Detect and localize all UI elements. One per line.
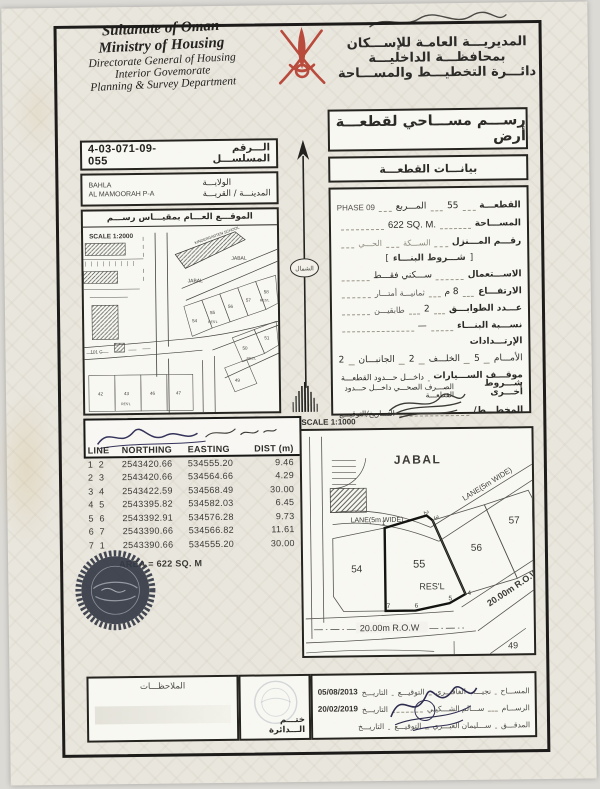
cell: 9.46: [248, 456, 294, 470]
district-label: الحـــي: [358, 240, 382, 248]
wilaya-label: الولايـــة: [202, 177, 270, 188]
cell: 534564.66: [188, 470, 248, 484]
overview-plot-54: 54: [192, 318, 198, 323]
cell: 534555.20: [189, 537, 249, 551]
use-label: الاســـتعمال: [468, 270, 522, 280]
cell: 2543395.82: [122, 497, 188, 511]
overview-scale-label: SCALE 1:2000: [89, 233, 134, 241]
planner-signature: [379, 384, 469, 419]
cell: 2543422.59: [122, 484, 188, 498]
official-round-stamp: [71, 546, 160, 635]
back-label: الخلـــف: [429, 355, 460, 364]
cell: 2543420.66: [122, 470, 188, 484]
cell: 5 6: [88, 512, 122, 526]
checker-role: المدقـــق: [501, 721, 530, 729]
detail-plot-49: 49: [508, 640, 518, 650]
cell: 3 4: [88, 485, 122, 499]
notes-smudge: [95, 705, 231, 725]
jabal-label-2: JABAL: [188, 278, 204, 284]
detail-map-box: JABAL LANE(5m WIDE) LANE(5m WIDE) 54 55 …: [299, 426, 536, 658]
overview-resl-43: RES'L: [121, 402, 131, 406]
ratio-value: —: [418, 322, 427, 331]
serial-number-box: 4-03-071-09-055 الـــرقم المسلســـل: [80, 138, 278, 170]
cell: 534555.20: [188, 456, 248, 470]
jabal-label-1: JABAL: [231, 256, 247, 262]
overview-plot-42: 42: [98, 391, 104, 396]
drawing-title-box: رســـم مســـاحي لقطعـــة أرض: [328, 107, 528, 151]
town-value: AL MAMOORAH P-A: [89, 190, 155, 198]
date-2: 20/02/2019: [318, 705, 358, 713]
detail-plot-57: 57: [509, 515, 521, 526]
north-arrow-strip: الشمال: [284, 136, 325, 418]
overview-plot-51: 51: [264, 335, 270, 340]
department-stamp-label: ختـــم الـــدائرة: [241, 715, 305, 736]
date-1: 05/08/2013: [318, 688, 358, 696]
detail-lane-2: LANE(5m WIDE): [351, 517, 404, 525]
draftsman-role: الرســـام: [501, 704, 529, 712]
overview-map-drawing: SCALE 1:2000 101 C KINDERGARTEN SCHOOL: [83, 225, 279, 413]
other-conditions-label: شـــروط أخـــرى: [462, 379, 523, 398]
overview-plot-56: 56: [228, 304, 234, 309]
conditions-header-close: ]: [385, 255, 389, 264]
setbacks-label: الإرتـــدادات: [470, 337, 523, 347]
cell: 2 3: [88, 471, 122, 485]
overview-resl-1: RES'L: [208, 320, 218, 324]
cell: 30.00: [248, 483, 294, 497]
overview-plot-55: 55: [210, 310, 216, 315]
overview-plot-50: 50: [242, 346, 248, 351]
front-label: الأمـــام: [494, 354, 523, 363]
detail-jabal-label: JABAL: [394, 452, 442, 467]
plot-data-header-box: بيانـــات القطعـــة: [328, 154, 528, 182]
height-value: 8 م: [444, 288, 458, 297]
detail-map-scale: SCALE 1:1000: [301, 417, 355, 427]
detail-map-drawing: JABAL LANE(5m WIDE) LANE(5m WIDE) 54 55 …: [301, 428, 534, 656]
cell: 534568.49: [188, 483, 248, 497]
overview-resl-3: RES'L: [247, 357, 257, 361]
paper-sheet: Sultanate of Oman Ministry of Housing Di…: [1, 1, 596, 785]
vertex-7: 7: [387, 603, 391, 610]
vertex-6: 6: [415, 603, 419, 610]
cell: 6.45: [248, 496, 294, 510]
plot-number: 55: [447, 202, 459, 211]
front-value: 5: [474, 355, 480, 364]
cell: 4.29: [248, 469, 294, 483]
house-number-label: رقـــم المـــنزل: [452, 237, 521, 247]
plot-data-header: بيانـــات القطعـــة: [379, 161, 477, 175]
detail-plot-55: 55: [413, 558, 425, 570]
use-value: ســـكني فقـــط: [373, 271, 432, 281]
plot-label: القطعـــة: [479, 201, 521, 211]
notes-label: الملاحظـــات: [95, 681, 231, 693]
vertex-1: 1: [382, 520, 386, 527]
area-label: المســـاحة: [475, 219, 521, 229]
drawing-title: رســـم مســـاحي لقطعـــة أرض: [330, 112, 526, 146]
parking-value: داخـــل حـــدود القطعـــة: [341, 373, 424, 382]
cell: 6 7: [89, 525, 123, 539]
cell: 11.61: [249, 523, 295, 537]
cell: 4 5: [88, 498, 122, 512]
north-label: الشمال: [295, 265, 314, 272]
col-dist: DIST (m): [248, 442, 294, 456]
cell: 2543390.66: [123, 524, 189, 538]
overview-plot-47: 47: [176, 390, 182, 395]
signatures-box: المســـاح نجيـــب الغافـــري التوقيـــع …: [310, 671, 537, 740]
lane-label: الســـكة: [403, 239, 431, 247]
square-value: PHASE 09: [337, 204, 375, 212]
overview-map-box: الموقـــع العـــام بمقيـــاس رســـم SCAL…: [81, 207, 282, 415]
town-label: المدينـــة / القريـــة: [203, 188, 271, 199]
overview-plot-49: 49: [235, 378, 241, 383]
col-easting: EASTING: [188, 443, 248, 457]
overview-plot-58: 58: [264, 289, 270, 294]
serial-number-label: الـــرقم المسلســـل: [174, 142, 271, 165]
detail-row-bottom: 20.00m R.O.W: [360, 623, 420, 634]
floors-note: طابقيـــن: [374, 307, 405, 315]
overview-plot-57: 57: [246, 298, 252, 303]
col-line: LINE: [88, 444, 122, 458]
wilaya-value: BAHLA: [88, 181, 154, 189]
detail-resl: RES'L: [419, 581, 444, 591]
cell: 534576.28: [188, 510, 248, 524]
cell: 534582.03: [188, 497, 248, 511]
cell: 2543420.66: [122, 457, 188, 471]
overview-plot-46: 46: [150, 391, 156, 396]
detail-plot-56: 56: [471, 543, 483, 554]
floors-label: عـــدد الطوابـــق: [449, 304, 522, 314]
cell: 30.00: [249, 537, 295, 551]
department-stamp-box: ختـــم الـــدائرة: [238, 674, 311, 741]
cell: 2543392.91: [122, 511, 188, 525]
col-northing: NORTHING: [122, 443, 188, 457]
square-label: المـــربع: [396, 202, 427, 211]
area-value: 622 SQ. M.: [388, 220, 436, 230]
location-box: BAHLA AL MAMOORAH P-A الولايـــة المدينـ…: [80, 171, 278, 206]
cell: 9.73: [248, 510, 294, 524]
overview-plot-43: 43: [124, 391, 130, 396]
vertex-5: 5: [448, 595, 452, 602]
detail-plot-54: 54: [351, 564, 363, 575]
sides-label: الجانبـــان: [358, 356, 394, 365]
conditions-header: شـــروط البنـــاء: [393, 254, 466, 264]
paper-stain: [0, 388, 58, 549]
serial-number-value: 4-03-071-09-055: [88, 143, 174, 168]
height-note: ثمانيـــة أمتـــار: [375, 289, 425, 298]
sides-value: 2: [339, 356, 345, 365]
planner-label: المخطـــط/: [473, 406, 523, 416]
plot-details-box: القطعـــة 55 المـــربع PHASE 09 المســـا…: [328, 185, 531, 415]
document-frame: رســـم مســـاحي لقطعـــة أرض بيانـــات ا…: [53, 20, 550, 758]
conditions-header-open: [: [470, 254, 474, 263]
back-value: 2: [409, 356, 415, 365]
surveyor-role: المســـاح: [500, 687, 529, 695]
notes-box: الملاحظـــات: [86, 675, 239, 743]
scanned-survey-document: Sultanate of Oman Ministry of Housing Di…: [0, 0, 600, 789]
ratio-label: نســـبة البنـــاء: [457, 321, 522, 331]
floors-value: 2: [424, 305, 430, 314]
overview-resl-2: RES'L: [260, 298, 270, 302]
cell: 534566.82: [189, 524, 249, 538]
cell: 1 2: [88, 458, 122, 472]
checker-signature: [372, 676, 483, 735]
height-label: الارتفـــاع: [478, 287, 522, 297]
